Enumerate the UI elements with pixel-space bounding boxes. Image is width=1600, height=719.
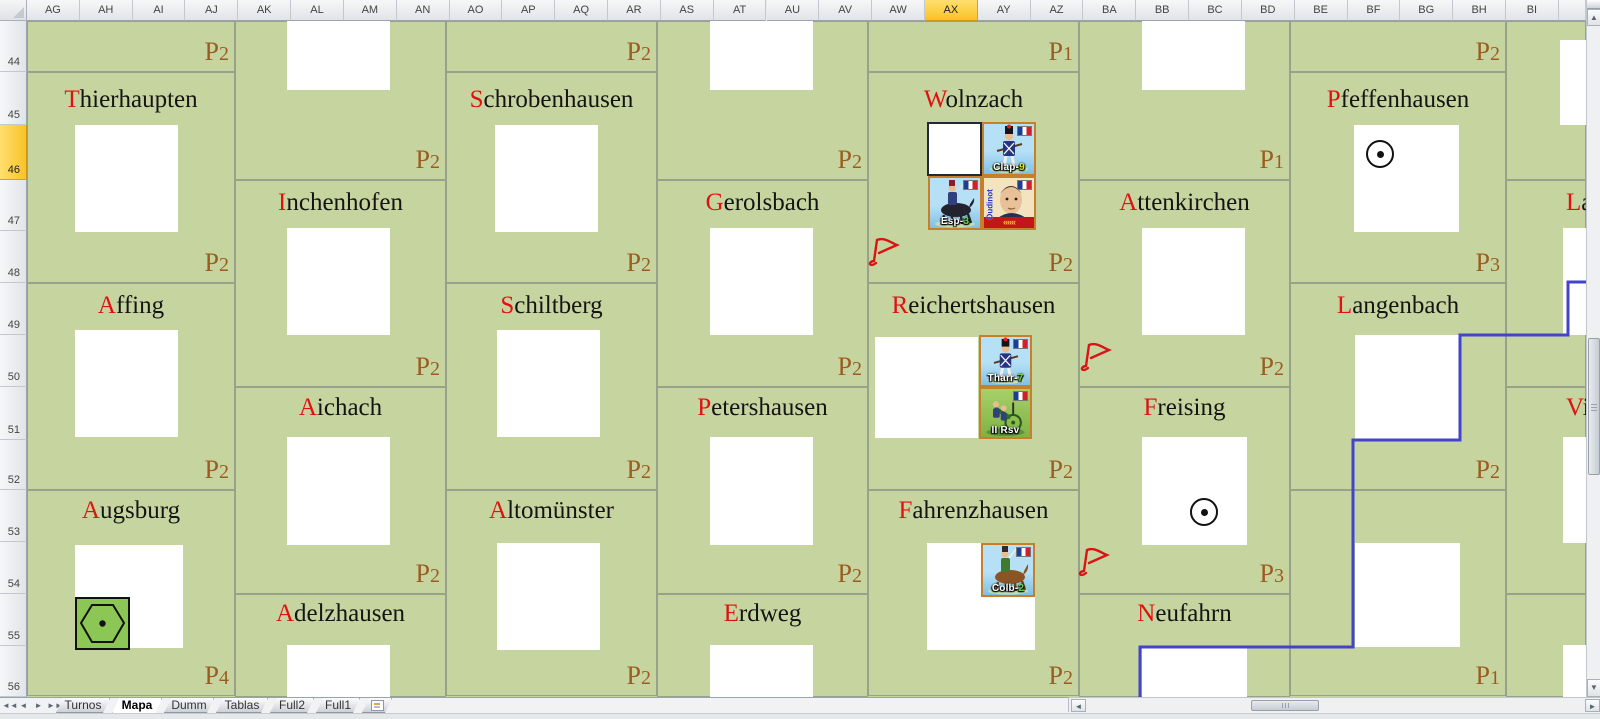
town-name-initial: G xyxy=(706,189,724,216)
french-flag-icon xyxy=(1013,391,1028,401)
row-header-52[interactable]: 52 xyxy=(0,440,27,490)
column-header-au[interactable]: AU xyxy=(767,0,820,21)
province-label-schrobenhausen: P2 xyxy=(611,250,651,278)
province-label-freising: P3 xyxy=(1244,561,1284,589)
province-label-affing: P2 xyxy=(189,457,229,485)
town-name-pfeffenhausen: Pfeffenhausen xyxy=(1327,86,1470,114)
column-header-bd[interactable]: BD xyxy=(1242,0,1295,21)
column-header-bh[interactable]: BH xyxy=(1453,0,1506,21)
town-box-25 xyxy=(1563,437,1586,543)
city-circle-icon-0 xyxy=(1366,140,1394,168)
row-header-45[interactable]: 45 xyxy=(0,72,27,125)
tab-full2[interactable]: Full2 xyxy=(270,698,314,713)
town-name-initial: V xyxy=(1566,394,1583,421)
selected-cell-ax46[interactable] xyxy=(927,122,982,176)
town-name-langenbach: Langenbach xyxy=(1337,292,1459,320)
town-name-initial: P xyxy=(1327,86,1341,113)
town-box-16 xyxy=(1142,21,1245,90)
scroll-right-button[interactable]: ► xyxy=(1585,699,1600,712)
town-box-3 xyxy=(287,21,390,90)
column-header-ap[interactable]: AP xyxy=(502,0,555,21)
column-header-aq[interactable]: AQ xyxy=(555,0,608,21)
counter-strength: 9 xyxy=(1019,162,1025,173)
tab-mapa[interactable]: Mapa xyxy=(112,698,162,714)
province-number: 2 xyxy=(1063,667,1073,689)
row-header-51[interactable]: 51 xyxy=(0,387,27,440)
french-flag-icon xyxy=(1016,547,1031,557)
province-label-unnamed-16: P1 xyxy=(1033,39,1073,67)
counter-label: Tharr-7 xyxy=(981,373,1030,384)
town-box-21 xyxy=(1355,335,1460,440)
game-map: P2ThierhauptenP2AffingP2AugsburgP4P2Inch… xyxy=(0,0,1586,697)
province-label-unnamed-12: P2 xyxy=(822,147,862,175)
town-box-20 xyxy=(1354,125,1459,232)
province-number: 2 xyxy=(852,565,862,587)
leader-name-label: Oudinot xyxy=(986,185,995,225)
province-label-unnamed-8: P2 xyxy=(611,39,651,67)
town-box-26 xyxy=(1563,645,1586,697)
town-box-6 xyxy=(287,645,390,697)
column-header-bf[interactable]: BF xyxy=(1348,0,1401,21)
town-name-initial: F xyxy=(899,497,913,524)
province-number: 2 xyxy=(1274,358,1284,380)
province-number: 3 xyxy=(1274,565,1284,587)
horizontal-scrollbar[interactable]: ◄ ► xyxy=(1068,697,1600,712)
town-box-18 xyxy=(1142,437,1247,545)
insert-worksheet-tab[interactable] xyxy=(362,698,392,713)
row-header-48[interactable]: 48 xyxy=(0,231,27,283)
town-name-aichach: Aichach xyxy=(299,394,382,422)
row-header-50[interactable]: 50 xyxy=(0,335,27,387)
province-label-schiltberg: P2 xyxy=(611,457,651,485)
town-name-initial: S xyxy=(470,86,484,113)
town-box-10 xyxy=(710,21,813,90)
town-box-22 xyxy=(1355,543,1460,647)
counter-label: Esp-3 xyxy=(930,216,980,227)
town-box-17 xyxy=(1142,228,1245,335)
unit-counter-ii-rsv[interactable]: II Rsv xyxy=(979,387,1032,439)
province-number: 2 xyxy=(641,254,651,276)
province-label-augsburg: P4 xyxy=(189,663,229,691)
previous-sheet-button[interactable]: ◄ xyxy=(17,699,30,712)
scroll-up-button[interactable]: ▲ xyxy=(1587,9,1600,26)
column-header-ar[interactable]: AR xyxy=(608,0,661,21)
town-box-11 xyxy=(710,228,813,335)
province-number: 2 xyxy=(219,254,229,276)
town-name-initial: A xyxy=(489,497,507,524)
town-name-augsburg: Augsburg xyxy=(82,497,180,525)
counter-label: Clap-9 xyxy=(984,162,1034,173)
town-name-initial: A xyxy=(1119,189,1137,216)
town-name-inchenhofen: Inchenhofen xyxy=(278,189,403,217)
town-name-fahrenzhausen: Fahrenzhausen xyxy=(899,497,1049,525)
column-header-al[interactable]: AL xyxy=(291,0,344,21)
town-name-initial: P xyxy=(697,394,711,421)
row-header-56[interactable]: 56 xyxy=(0,646,27,697)
town-name-gerolsbach: Gerolsbach xyxy=(706,189,820,217)
column-header-bg[interactable]: BG xyxy=(1400,0,1453,21)
town-name-initial: A xyxy=(276,600,294,627)
province-number: 1 xyxy=(1490,667,1500,689)
town-box-13 xyxy=(710,645,813,697)
town-name-attenkirchen: Attenkirchen xyxy=(1119,189,1250,217)
tab-turnos[interactable]: Turnos xyxy=(56,698,110,713)
town-name-initial: F xyxy=(1144,394,1158,421)
column-header-bb[interactable]: BB xyxy=(1136,0,1189,21)
province-label-unnamed-4: P2 xyxy=(400,147,440,175)
province-label-fahrenzhausen: P2 xyxy=(1033,663,1073,691)
column-header-an[interactable]: AN xyxy=(397,0,450,21)
tab-full1[interactable]: Full1 xyxy=(316,698,360,713)
town-name-initial: L xyxy=(1566,189,1581,216)
first-sheet-button[interactable]: ◄◄ xyxy=(2,699,15,712)
select-all-corner[interactable] xyxy=(0,0,27,21)
column-header-av[interactable]: AV xyxy=(819,0,872,21)
row-header-47[interactable]: 47 xyxy=(0,180,27,231)
column-header-ah[interactable]: AH xyxy=(80,0,133,21)
province-number: 3 xyxy=(1490,254,1500,276)
column-header-stub xyxy=(1559,0,1586,21)
red-flag-icon-0 xyxy=(866,233,902,269)
horizontal-scroll-thumb[interactable] xyxy=(1251,700,1319,711)
province-label-gerolsbach: P2 xyxy=(822,354,862,382)
column-header-ay[interactable]: AY xyxy=(978,0,1031,21)
province-label-pfeffenhausen: P3 xyxy=(1460,250,1500,278)
column-header-ak[interactable]: AK xyxy=(238,0,291,21)
town-box-23 xyxy=(1560,40,1586,125)
town-name-thierhaupten: Thierhaupten xyxy=(64,86,197,114)
town-box-24 xyxy=(1563,228,1586,335)
province-number: 2 xyxy=(430,151,440,173)
province-label-unnamed-0: P2 xyxy=(189,39,229,67)
town-name-reichertshausen: Reichertshausen xyxy=(892,292,1056,320)
province-number: 2 xyxy=(430,565,440,587)
counter-strength: 7 xyxy=(1018,373,1024,384)
town-name-wolnzach: Wolnzach xyxy=(924,86,1023,114)
province-number: 2 xyxy=(852,358,862,380)
row-header-54[interactable]: 54 xyxy=(0,542,27,594)
town-box-14 xyxy=(875,337,978,438)
province-label-thierhaupten: P2 xyxy=(189,250,229,278)
province-number: 2 xyxy=(852,151,862,173)
province-number: 2 xyxy=(1063,254,1073,276)
province-number: 1 xyxy=(1274,151,1284,173)
province-label-wolnzach: P2 xyxy=(1033,250,1073,278)
column-header-aw[interactable]: AW xyxy=(872,0,925,21)
counter-label: Colb-2 xyxy=(983,583,1033,594)
vertical-scrollbar[interactable]: ▲ ▼ xyxy=(1586,0,1600,697)
town-name-initial: I xyxy=(278,189,286,216)
city-circle-icon-1 xyxy=(1190,498,1218,526)
column-header-be[interactable]: BE xyxy=(1295,0,1348,21)
unit-counter-clap-9[interactable]: Clap-9 xyxy=(982,122,1036,176)
column-header-aj[interactable]: AJ xyxy=(185,0,238,21)
unit-counter-tharr-7[interactable]: Tharr-7 xyxy=(979,335,1032,387)
town-box-12 xyxy=(710,437,813,545)
town-name-erdweg: Erdweg xyxy=(724,600,802,628)
tab-tablas[interactable]: Tablas xyxy=(216,698,268,713)
town-name-schiltberg: Schiltberg xyxy=(500,292,602,320)
town-box-0 xyxy=(75,125,178,232)
province-label-inchenhofen: P2 xyxy=(400,354,440,382)
province-number: 2 xyxy=(430,358,440,380)
column-header-am[interactable]: AM xyxy=(344,0,397,21)
town-box-8 xyxy=(497,330,600,437)
town-name-initial: L xyxy=(1337,292,1352,319)
vertical-scroll-thumb[interactable] xyxy=(1588,338,1600,475)
province-label-unnamed-20: P1 xyxy=(1244,147,1284,175)
column-header-ag[interactable]: AG xyxy=(27,0,80,21)
province-label-langenbach: P2 xyxy=(1460,457,1500,485)
row-header-46[interactable]: 46 xyxy=(0,125,27,180)
province-label-altomnster: P2 xyxy=(611,663,651,691)
unit-counter-esp-3[interactable]: Esp-3 xyxy=(928,176,982,230)
province-number: 2 xyxy=(641,461,651,483)
next-sheet-button[interactable]: ► xyxy=(32,699,45,712)
french-flag-icon xyxy=(1017,126,1032,136)
column-header-ba[interactable]: BA xyxy=(1083,0,1136,21)
column-header-ai[interactable]: AI xyxy=(133,0,186,21)
town-name-initial: R xyxy=(892,292,909,319)
unit-counter-oudinot[interactable]: Oudinot««« xyxy=(982,176,1036,230)
province-label-reichertshausen: P2 xyxy=(1033,457,1073,485)
town-name-neufahrn: Neufahrn xyxy=(1137,600,1231,628)
french-flag-icon xyxy=(1013,339,1028,349)
row-header-55[interactable]: 55 xyxy=(0,594,27,646)
new-sheet-icon xyxy=(371,700,384,711)
province-number: 4 xyxy=(219,667,229,689)
town-box-9 xyxy=(497,543,600,650)
counter-strength: 2 xyxy=(1018,583,1024,594)
town-name-initial: T xyxy=(64,86,79,113)
town-name-altomnster: Altomünster xyxy=(489,497,614,525)
row-header-44[interactable]: 44 xyxy=(0,21,27,72)
town-box-5 xyxy=(287,437,390,545)
column-header-az[interactable]: AZ xyxy=(1031,0,1084,21)
french-flag-icon xyxy=(963,180,978,190)
town-box-4 xyxy=(287,228,390,335)
hex-marker-icon xyxy=(75,597,130,650)
town-name-schrobenhausen: Schrobenhausen xyxy=(470,86,634,114)
french-flag-icon xyxy=(1017,180,1032,190)
province-number: 2 xyxy=(1063,461,1073,483)
column-header-at[interactable]: AT xyxy=(714,0,767,21)
town-name-initial: W xyxy=(924,86,946,113)
town-name-affing: Affing xyxy=(98,292,164,320)
province-number: 2 xyxy=(641,667,651,689)
province-label-petershausen: P2 xyxy=(822,561,862,589)
province-number: 2 xyxy=(1490,43,1500,65)
row-header-53[interactable]: 53 xyxy=(0,490,27,542)
status-bar xyxy=(0,713,1600,719)
tab-dumm[interactable]: Dumm xyxy=(164,698,214,713)
column-header-ao[interactable]: AO xyxy=(450,0,503,21)
province-number: 2 xyxy=(641,43,651,65)
town-name-initial: N xyxy=(1137,600,1155,627)
province-number: 2 xyxy=(1490,461,1500,483)
column-header-bi[interactable]: BI xyxy=(1506,0,1559,21)
province-number: 2 xyxy=(219,461,229,483)
red-flag-icon-2 xyxy=(1076,543,1112,579)
red-flag-icon-1 xyxy=(1078,338,1114,374)
province-label-unnamed-24: P2 xyxy=(1460,39,1500,67)
town-box-1 xyxy=(75,330,178,437)
counter-strength: 3 xyxy=(963,216,969,227)
town-name-initial: A xyxy=(299,394,317,421)
town-name-initial: S xyxy=(500,292,514,319)
column-header-ax[interactable]: AX xyxy=(925,0,978,21)
province-label-attenkirchen: P2 xyxy=(1244,354,1284,382)
province-number: 1 xyxy=(1063,43,1073,65)
town-name-initial: E xyxy=(724,600,739,627)
town-box-19 xyxy=(1142,648,1247,697)
split-handle[interactable] xyxy=(1587,0,1600,9)
province-label-unnamed-27: P1 xyxy=(1460,663,1500,691)
town-name-adelzhausen: Adelzhausen xyxy=(276,600,405,628)
counter-label: II Rsv xyxy=(981,425,1030,436)
row-header-49[interactable]: 49 xyxy=(0,283,27,335)
excel-window: P2ThierhauptenP2AffingP2AugsburgP4P2Inch… xyxy=(0,0,1600,719)
province-label-aichach: P2 xyxy=(400,561,440,589)
scroll-left-button[interactable]: ◄ xyxy=(1071,699,1086,712)
column-header-bc[interactable]: BC xyxy=(1189,0,1242,21)
town-name-petershausen: Petershausen xyxy=(697,394,828,422)
town-name-freising: Freising xyxy=(1144,394,1226,422)
column-header-as[interactable]: AS xyxy=(661,0,714,21)
town-name-initial: A xyxy=(82,497,100,524)
town-name-initial: A xyxy=(98,292,116,319)
unit-counter-colb-2[interactable]: Colb-2 xyxy=(981,543,1035,597)
province-number: 2 xyxy=(219,43,229,65)
scroll-down-button[interactable]: ▼ xyxy=(1587,679,1600,697)
town-box-7 xyxy=(495,125,598,232)
